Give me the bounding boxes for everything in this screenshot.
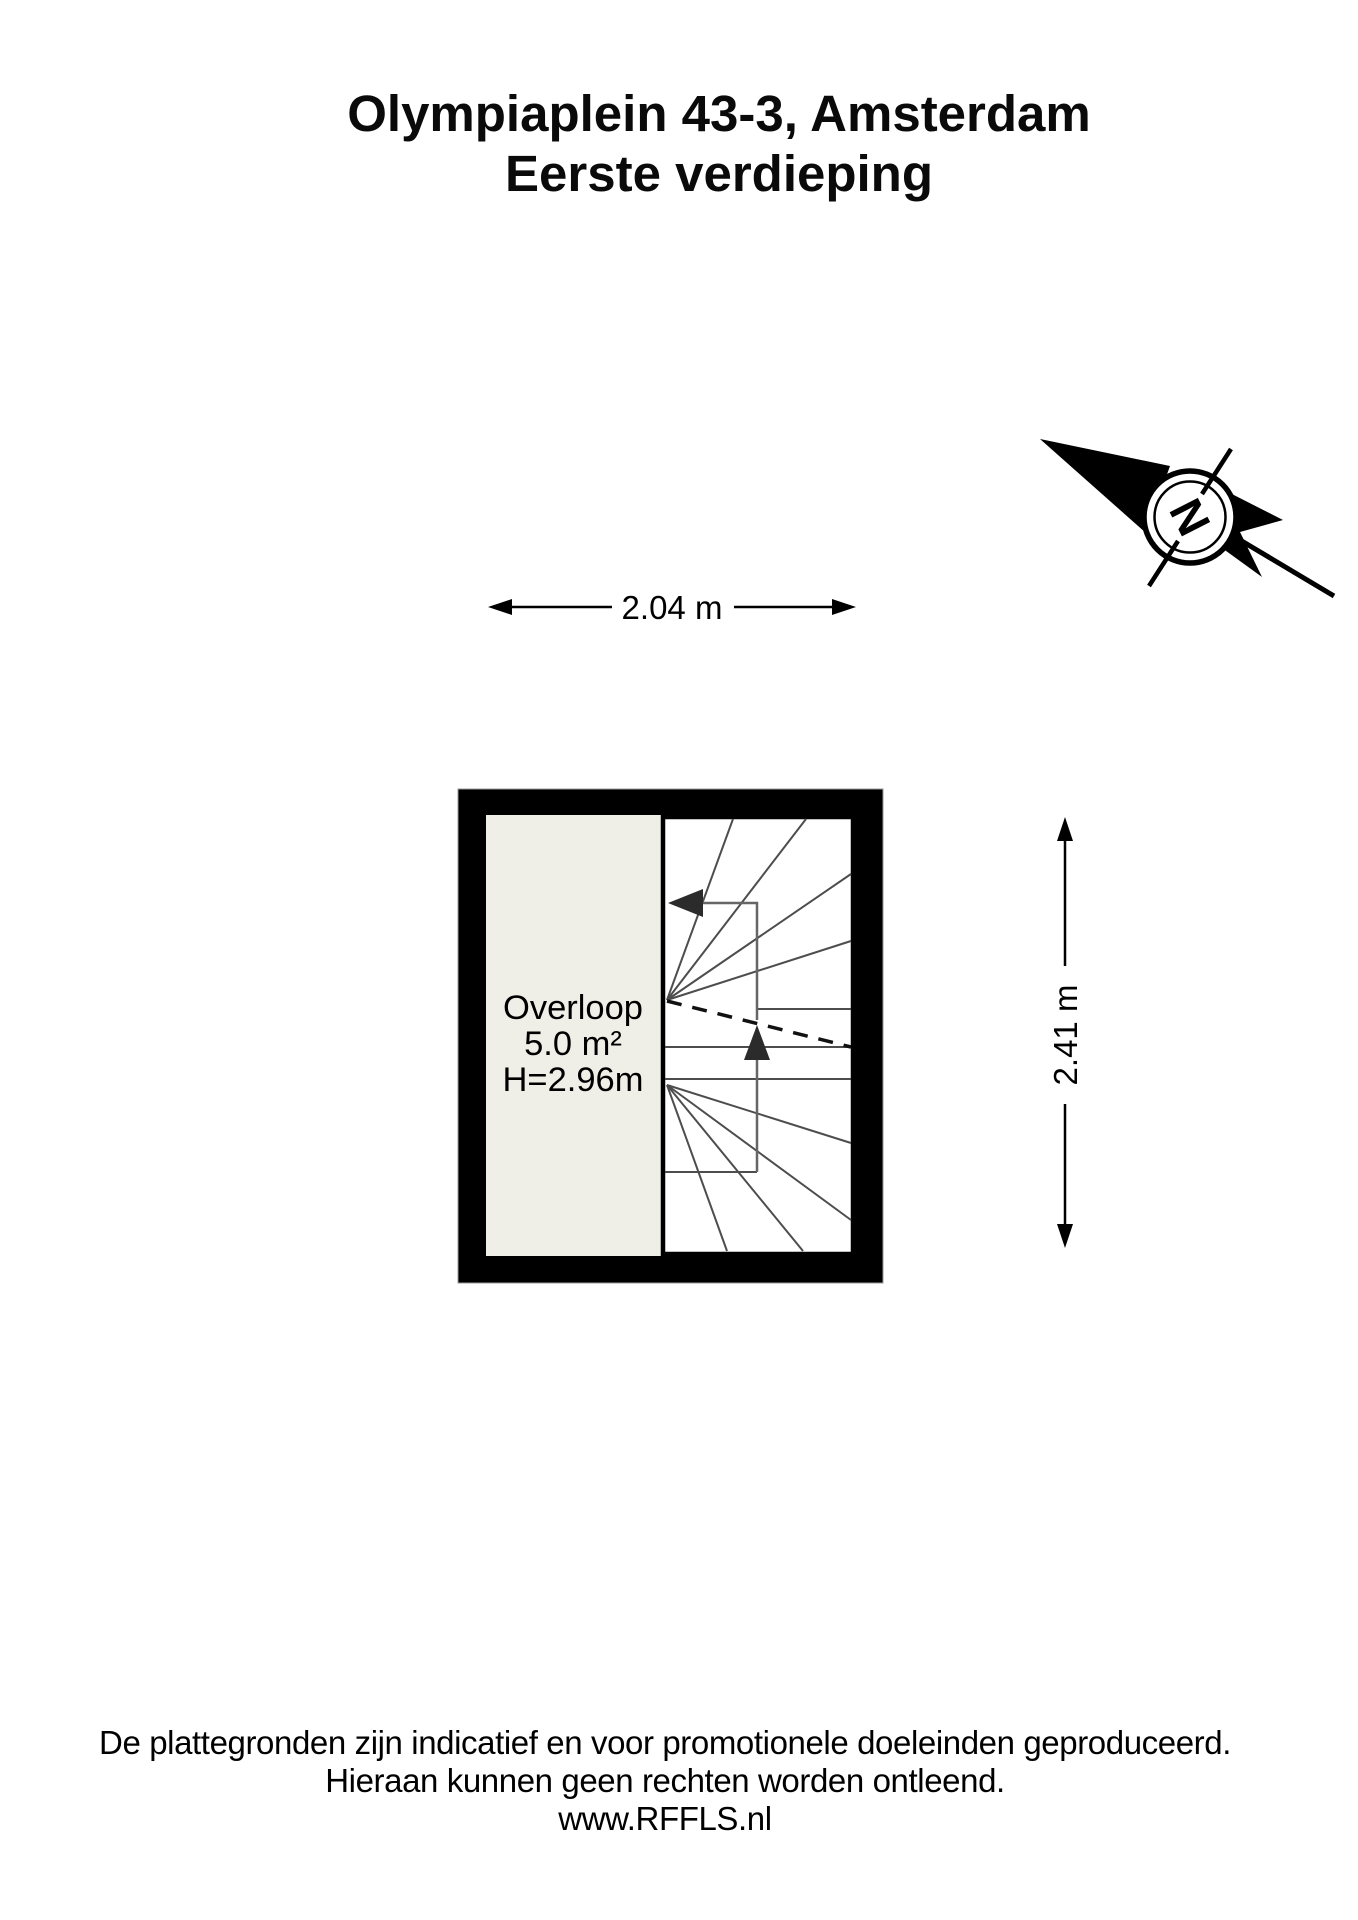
- dimension-height-arrow-bottom: [1057, 1224, 1073, 1248]
- dimension-height-arrow-top: [1057, 817, 1073, 841]
- room-name: Overloop: [503, 989, 643, 1027]
- floorplan-page: Olympiaplein 43-3, Amsterdam Eerste verd…: [0, 0, 1358, 1920]
- room-ceiling-height: H=2.96m: [503, 1061, 644, 1099]
- floorplan-body: Overloop 5.0 m² H=2.96m: [458, 789, 883, 1283]
- dimension-height-label: 2.41 m: [1047, 985, 1084, 1086]
- dimension-height: 2.41 m: [1047, 817, 1084, 1248]
- dimension-width: 2.04 m: [488, 589, 856, 626]
- disclaimer-line1: De plattegronden zijn indicatief en voor…: [99, 1724, 1231, 1762]
- disclaimer: De plattegronden zijn indicatief en voor…: [99, 1724, 1231, 1838]
- disclaimer-website: www.RFFLS.nl: [99, 1800, 1231, 1838]
- room-area: 5.0 m²: [524, 1025, 622, 1063]
- floorplan-canvas: N 2.04 m 2.41 m: [0, 0, 1358, 1920]
- north-compass: N: [1040, 439, 1334, 596]
- dimension-width-arrow-right: [832, 599, 856, 615]
- dimension-width-label: 2.04 m: [622, 589, 723, 626]
- disclaimer-line2: Hieraan kunnen geen rechten worden ontle…: [99, 1762, 1231, 1800]
- dimension-width-arrow-left: [488, 599, 512, 615]
